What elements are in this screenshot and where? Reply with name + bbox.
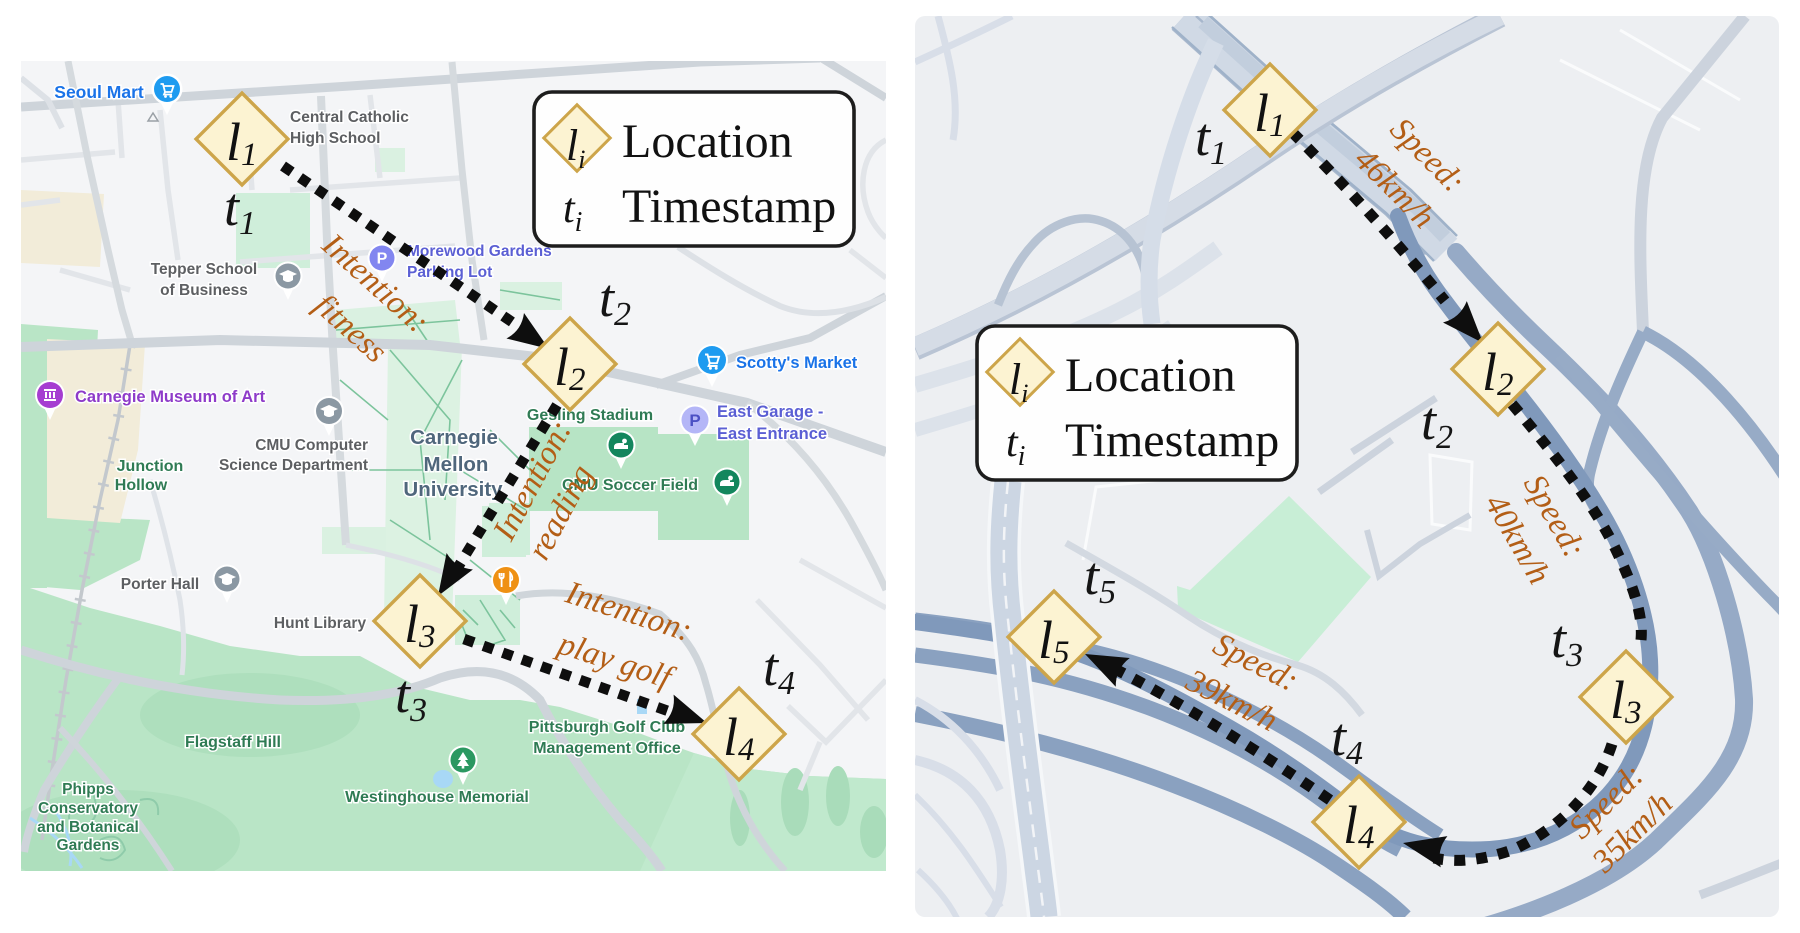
svg-text:East Garage -: East Garage - [717,403,823,421]
svg-text:P: P [689,411,700,430]
svg-text:CMU Computer: CMU Computer [255,437,368,454]
svg-text:Gardens: Gardens [57,837,120,854]
svg-text:Junction: Junction [117,458,184,475]
svg-text:Management Office: Management Office [533,740,681,757]
svg-text:Carnegie: Carnegie [410,426,498,449]
svg-text:Scotty's Market: Scotty's Market [736,354,858,372]
svg-text:Mellon: Mellon [424,453,489,476]
svg-text:Science Department: Science Department [219,457,368,474]
svg-text:Tepper School: Tepper School [151,261,258,278]
svg-text:and Botanical: and Botanical [37,819,139,836]
svg-text:Morewood Gardens: Morewood Gardens [407,243,552,260]
svg-text:Hunt Library: Hunt Library [274,615,367,632]
svg-text:University: University [403,478,503,501]
svg-text:Timestamp: Timestamp [622,180,836,233]
svg-text:Central Catholic: Central Catholic [290,109,409,126]
svg-text:High School: High School [290,130,380,147]
svg-text:Carnegie Museum of Art: Carnegie Museum of Art [75,388,266,406]
svg-text:Location: Location [1065,349,1236,402]
svg-text:Conservatory: Conservatory [38,800,138,817]
svg-text:Parking Lot: Parking Lot [407,264,492,281]
svg-text:Westinghouse Memorial: Westinghouse Memorial [345,789,529,806]
svg-text:Seoul Mart: Seoul Mart [54,82,144,102]
svg-text:Porter Hall: Porter Hall [121,576,199,593]
svg-text:Timestamp: Timestamp [1065,414,1279,467]
svg-text:Flagstaff Hill: Flagstaff Hill [185,734,281,751]
svg-text:Phipps: Phipps [62,781,114,798]
svg-text:of Business: of Business [160,282,248,299]
svg-text:Pittsburgh Golf Club: Pittsburgh Golf Club [529,719,686,736]
svg-text:Location: Location [622,115,793,168]
svg-text:Hollow: Hollow [115,477,168,494]
svg-text:East Entrance: East Entrance [717,425,827,443]
